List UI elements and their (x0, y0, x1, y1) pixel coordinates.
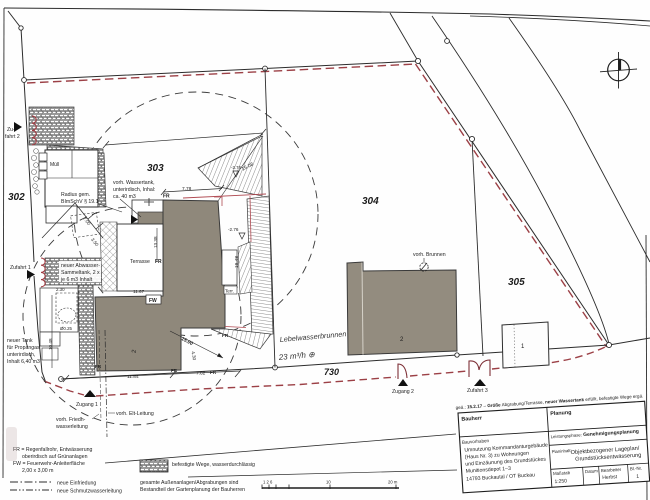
svg-text:1:250: 1:250 (554, 478, 567, 485)
svg-text:fahrt 2: fahrt 2 (5, 134, 20, 140)
svg-text:304: 304 (362, 196, 379, 207)
svg-text:Radius gem.: Radius gem. (61, 192, 90, 198)
svg-text:19.48: 19.48 (234, 256, 240, 268)
svg-text:10.48: 10.48 (48, 338, 53, 350)
svg-text:Zu-: Zu- (7, 127, 15, 133)
svg-text:Zugang 1: Zugang 1 (76, 402, 98, 408)
svg-text:FR: FR (171, 368, 178, 373)
svg-text:Sammeltank, 2 x: Sammeltank, 2 x (61, 270, 100, 276)
svg-text:Terrasse: Terrasse (130, 259, 150, 265)
svg-text:305: 305 (508, 277, 525, 288)
svg-text:FR: FR (155, 259, 162, 265)
svg-text:Zugang 2: Zugang 2 (392, 389, 414, 395)
svg-text:wasserleitung: wasserleitung (56, 424, 88, 430)
svg-text:13.38: 13.38 (153, 236, 158, 248)
svg-text:730: 730 (324, 367, 339, 377)
svg-text:vorh. Brunnen: vorh. Brunnen (413, 252, 446, 258)
svg-text:oberirdisch auf Grünanlagen: oberirdisch auf Grünanlagen (22, 454, 88, 460)
svg-text:für Propangas: für Propangas (7, 345, 40, 351)
svg-text:-2.76: -2.76 (231, 165, 242, 170)
svg-text:302: 302 (8, 192, 25, 203)
svg-text:unterirdisch,: unterirdisch, (7, 352, 35, 358)
svg-text:Inhalt 6,40 m3: Inhalt 6,40 m3 (7, 359, 40, 365)
svg-text:BImSchV § 19.1: BImSchV § 19.1 (61, 199, 99, 205)
svg-text:neue Einfriedung: neue Einfriedung (57, 481, 96, 487)
svg-text:Zufahrt 1: Zufahrt 1 (10, 265, 31, 271)
svg-text:FR: FR (95, 364, 102, 369)
svg-text:gesamte Außenanlagen/Abgrabung: gesamte Außenanlagen/Abgrabungen sind (140, 480, 238, 486)
svg-text:unterirdisch, Inhal:: unterirdisch, Inhal: (113, 187, 155, 193)
svg-text:FW = Feuerwehr-Anleiterfläche: FW = Feuerwehr-Anleiterfläche (13, 461, 85, 467)
svg-text:Bestandteil der Gartenplanung: Bestandteil der Gartenplanung der Bauher… (140, 487, 245, 493)
svg-text:FR: FR (210, 370, 217, 375)
svg-text:je 6 m3 Inhalt: je 6 m3 Inhalt (60, 277, 93, 283)
svg-text:11.67: 11.67 (133, 289, 145, 294)
svg-text:Ø0.25: Ø0.25 (60, 326, 73, 331)
svg-text:-2.76: -2.76 (228, 227, 239, 232)
svg-text:2.30: 2.30 (56, 287, 65, 292)
svg-text:FR: FR (222, 333, 229, 338)
svg-text:Terr.: Terr. (225, 289, 234, 294)
svg-text:neuer Tank: neuer Tank (7, 338, 33, 344)
svg-text:vorh. Wassertank,: vorh. Wassertank, (113, 180, 155, 186)
svg-text:11.84: 11.84 (127, 374, 139, 380)
svg-text:Datum: Datum (585, 468, 599, 474)
svg-text:neuer Abwasser-: neuer Abwasser- (61, 263, 100, 269)
svg-text:Müll: Müll (50, 162, 59, 168)
svg-text:Bl.-Nr.: Bl.-Nr. (630, 466, 642, 472)
svg-text:20 m: 20 m (388, 480, 398, 485)
svg-text:vorh. Elt-Leitung: vorh. Elt-Leitung (116, 411, 154, 417)
svg-text:FW: FW (149, 298, 157, 304)
svg-text:vorh. Friedh-: vorh. Friedh- (56, 417, 86, 423)
svg-text:FR = Regenfallrohr, Entwässeru: FR = Regenfallrohr, Entwässerung (13, 447, 93, 453)
svg-text:1 2 6: 1 2 6 (263, 480, 273, 485)
svg-text:FR: FR (163, 194, 170, 200)
svg-text:Zufahrt 3: Zufahrt 3 (467, 388, 488, 394)
svg-text:10: 10 (326, 480, 331, 485)
svg-text:befestigte Wege, wasserdurchlä: befestigte Wege, wasserdurchlässig (172, 462, 255, 468)
svg-text:7.62: 7.62 (196, 371, 206, 377)
svg-text:2,00 x 3,00 m: 2,00 x 3,00 m (22, 468, 53, 474)
svg-text:303: 303 (147, 163, 164, 174)
svg-text:ca. 40 m3: ca. 40 m3 (113, 194, 136, 200)
svg-text:neue Schmutzwasserleitung: neue Schmutzwasserleitung (57, 489, 122, 495)
svg-text:Herbst: Herbst (602, 474, 618, 481)
svg-text:7.78: 7.78 (182, 186, 192, 192)
